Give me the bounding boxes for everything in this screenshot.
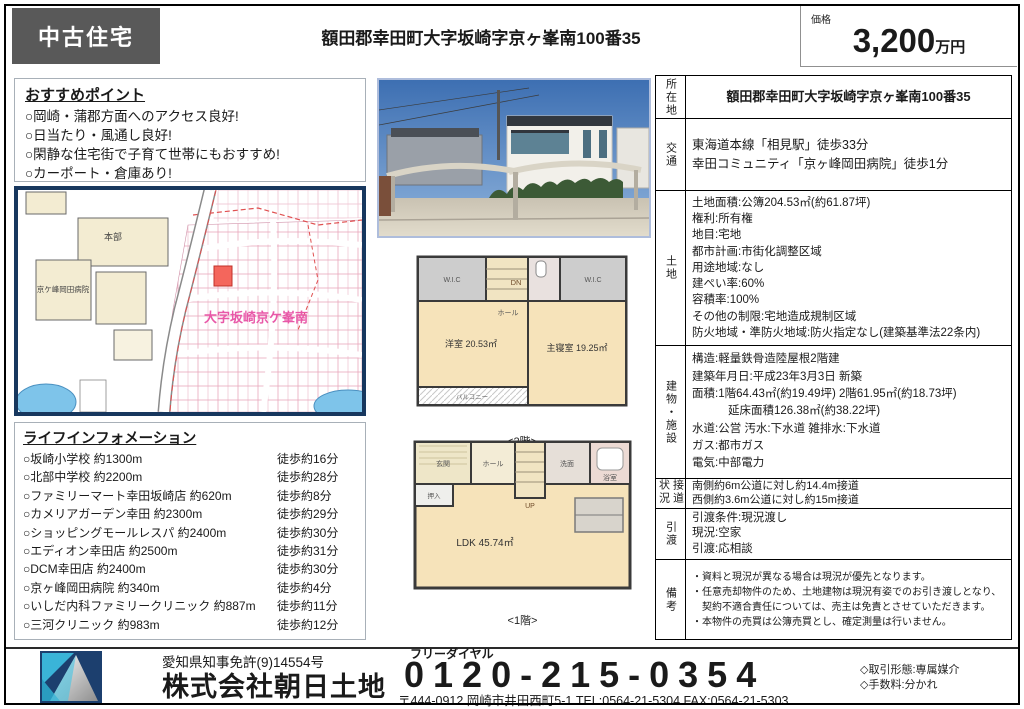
room-label-washroom: 洗面 [560, 459, 574, 468]
detail-line: 建ぺい率:60% [692, 276, 1005, 292]
room-label-shushinshitsu: 主寝室 19.25㎡ [546, 342, 607, 353]
room-label-up: UP [525, 503, 535, 510]
floorplan-2f: W.I.C W.I.C DN ホール 洋室 20.53㎡ 主寝室 19.25㎡ … [408, 251, 636, 449]
exterior-photo [377, 78, 651, 238]
room-label-wic: W.I.C [584, 277, 601, 284]
room-label-bath: 浴室 [603, 473, 617, 482]
property-type-badge: 中古住宅 [12, 8, 160, 64]
flyer-page: 中古住宅 額田郡幸田町大字坂崎字京ヶ峯南100番35 価格 3,200万円 おす… [0, 0, 1024, 709]
list-item: ○三河クリニック 約983m徒歩約12分 [23, 616, 357, 634]
company-logo [40, 651, 102, 708]
table-row-road-access: 接道状況 南側約6m公道に対し約14.4m接道 西側約3.6m公道に対し約15m… [656, 479, 1011, 509]
table-row-building: 建物・施設 構造:軽量鉄骨造陸屋根2階建 建築年月日:平成23年3月3日 新築 … [656, 346, 1011, 479]
recommend-points-panel: おすすめポイント ○岡崎・蒲郡方面へのアクセス良好! ○日当たり・風通し良好! … [14, 78, 366, 182]
row-label: 引渡 [664, 521, 678, 547]
detail-line: 都市計画:市街化調整区域 [692, 244, 1005, 260]
price-box: 価格 3,200万円 [800, 6, 1017, 67]
detail-line: 電気:中部電力 [692, 455, 1005, 472]
company-address: 〒444-0912 岡崎市井田西町5-1 TEL:0564-21-5304 FA… [398, 690, 789, 709]
row-label: 建物・施設 [664, 380, 678, 445]
room-label-balcony: バルコニー [456, 393, 488, 401]
list-item: ○京ヶ峰岡田病院 約340m徒歩約4分 [23, 579, 357, 597]
transaction-type: ◇取引形態:専属媒介 [860, 663, 960, 678]
row-label: 所在地 [664, 78, 678, 117]
detail-line: ・本物件の売買は公簿売買とし、確定測量は行いません。 [692, 615, 1005, 630]
price-unit: 万円 [935, 39, 965, 56]
detail-line: 現況:空家 [692, 526, 1005, 542]
detail-line: 幸田コミュニティ「京ヶ峰岡田病院」徒歩1分 [692, 155, 1005, 174]
map-facility-honbu: 本部 [104, 231, 122, 242]
company-name: 株式会社朝日土地 [162, 665, 386, 704]
map-image: 本部 京ケ峰岡田病院 大字坂崎京ケ峯南 [18, 190, 362, 412]
detail-line: 水道:公営 汚水:下水道 雑排水:下水道 [692, 421, 1005, 438]
recommend-item: ○日当たり・風通し良好! [25, 126, 355, 145]
detail-line: 建築年月日:平成23年3月3日 新築 [692, 369, 1005, 386]
detail-line: その他の制限:宅地造成規制区域 [692, 309, 1005, 325]
transaction-notes: ◇取引形態:専属媒介 ◇手数料:分かれ [860, 663, 960, 693]
room-label-closet: 押入 [428, 491, 442, 500]
life-info-title: ライフインフォメーション [23, 427, 357, 448]
list-item: ○エディオン幸田店 約2500m徒歩約31分 [23, 542, 357, 560]
table-row-remarks: 備考 ・資料と現況が異なる場合は現況が優先となります。 ・任意売却物件のため、土… [656, 560, 1011, 639]
detail-line: ガス:都市ガス [692, 438, 1005, 455]
list-item: ○北部中学校 約2200m徒歩約28分 [23, 468, 357, 486]
detail-line: 南側約6m公道に対し約14.4m接道 [692, 480, 1005, 494]
detail-line: 延床面積126.38㎡(約38.22坪) [692, 403, 1005, 420]
price-amount: 3,200 [853, 22, 936, 59]
detail-line: 東海道本線「相見駅」徒歩33分 [692, 136, 1005, 155]
room-label-wic: W.I.C [443, 277, 460, 284]
map-subject-parcel [214, 266, 232, 286]
room-label-genkan: 玄関 [436, 459, 450, 468]
recommend-item: ○閑静な住宅街で子育て世帯にもおすすめ! [25, 145, 355, 164]
list-item: ○ショッピングモールレスパ 約2400m徒歩約30分 [23, 524, 357, 542]
detail-line: 西側約3.6m公道に対し約15m接道 [692, 494, 1005, 508]
commission-note: ◇手数料:分かれ [860, 678, 960, 693]
life-information-panel: ライフインフォメーション ○坂崎小学校 約1300m徒歩約16分 ○北部中学校 … [14, 422, 366, 640]
row-label: 備考 [664, 587, 678, 613]
recommend-item: ○岡崎・蒲郡方面へのアクセス良好! [25, 107, 355, 126]
row-label: 接道状況 [657, 479, 685, 508]
list-item: ○DCM幸田店 約2400m徒歩約30分 [23, 560, 357, 578]
table-row-location: 所在地 額田郡幸田町大字坂崎字京ヶ峯南100番35 [656, 76, 1011, 119]
map-area-label: 大字坂崎京ケ峯南 [204, 310, 308, 325]
recommend-item: ○カーポート・倉庫あり! [25, 164, 355, 183]
floorplan-2f-image: W.I.C W.I.C DN ホール 洋室 20.53㎡ 主寝室 19.25㎡ … [408, 251, 636, 427]
floorplan-1f: 玄関 ホール UP 洗面 浴室 押入 LDK 45.74㎡ <1階> [405, 438, 640, 628]
detail-line: 額田郡幸田町大字坂崎字京ヶ峯南100番35 [726, 89, 970, 105]
recommend-title: おすすめポイント [25, 84, 355, 105]
detail-line: 土地面積:公簿204.53㎡(約61.87坪) [692, 195, 1005, 211]
footer-divider [6, 647, 1018, 649]
list-item: ○カメリアガーデン幸田 約2300m徒歩約29分 [23, 505, 357, 523]
room-label-ldk: LDK 45.74㎡ [456, 537, 513, 549]
list-item: ○坂崎小学校 約1300m徒歩約16分 [23, 450, 357, 468]
detail-line: 構造:軽量鉄骨造陸屋根2階建 [692, 351, 1005, 368]
list-item: ○いしだ内科ファミリークリニック 約887m徒歩約11分 [23, 597, 357, 615]
list-item: ○ファミリーマート幸田坂崎店 約620m徒歩約8分 [23, 487, 357, 505]
floorplan-1f-image: 玄関 ホール UP 洗面 浴室 押入 LDK 45.74㎡ [405, 438, 640, 606]
row-label: 土地 [664, 255, 678, 281]
row-label: 交通 [664, 142, 678, 168]
detail-line: ・任意売却物件のため、土地建物は現況有姿でのお引き渡しとなり、 [692, 585, 1005, 600]
detail-line: 地目:宅地 [692, 227, 1005, 243]
room-label-yoshitsu: 洋室 20.53㎡ [445, 338, 497, 349]
table-row-land: 土地 土地面積:公簿204.53㎡(約61.87坪) 権利:所有権 地目:宅地 … [656, 191, 1011, 346]
detail-line: 防火地域・準防火地域:防火指定なし(建築基準法22条内) [692, 325, 1005, 341]
price-value: 3,200万円 [801, 22, 1017, 60]
location-map: 本部 京ケ峰岡田病院 大字坂崎京ケ峯南 [14, 186, 366, 416]
detail-line: 契約不適合責任については、売主は免責とさせていただきます。 [692, 600, 1005, 615]
page-title: 額田郡幸田町大字坂崎字京ヶ峯南100番35 [166, 8, 796, 64]
detail-line: 容積率:100% [692, 292, 1005, 308]
detail-line: 用途地域:なし [692, 260, 1005, 276]
house-photo-image [379, 80, 649, 236]
property-details-table: 所在地 額田郡幸田町大字坂崎字京ヶ峯南100番35 交通 東海道本線「相見駅」徒… [655, 75, 1012, 640]
room-label-dn: DN [511, 278, 522, 287]
detail-line: 引渡条件:現況渡し [692, 511, 1005, 527]
company-logo-icon [40, 651, 102, 703]
table-row-handover: 引渡 引渡条件:現況渡し 現況:空家 引渡:応相談 [656, 509, 1011, 560]
room-label-hall: ホール [483, 460, 504, 468]
table-row-transport: 交通 東海道本線「相見駅」徒歩33分 幸田コミュニティ「京ヶ峰岡田病院」徒歩1分 [656, 119, 1011, 191]
detail-line: 面積:1階64.43㎡(約19.49坪) 2階61.95㎡(約18.73坪) [692, 386, 1005, 403]
floorplan-1f-caption: <1階> [405, 612, 640, 628]
detail-line: 引渡:応相談 [692, 542, 1005, 558]
detail-line: ・資料と現況が異なる場合は現況が優先となります。 [692, 570, 1005, 585]
detail-line: 権利:所有権 [692, 211, 1005, 227]
room-label-hall: ホール [498, 309, 519, 317]
map-facility-hospital: 京ケ峰岡田病院 [37, 284, 90, 294]
